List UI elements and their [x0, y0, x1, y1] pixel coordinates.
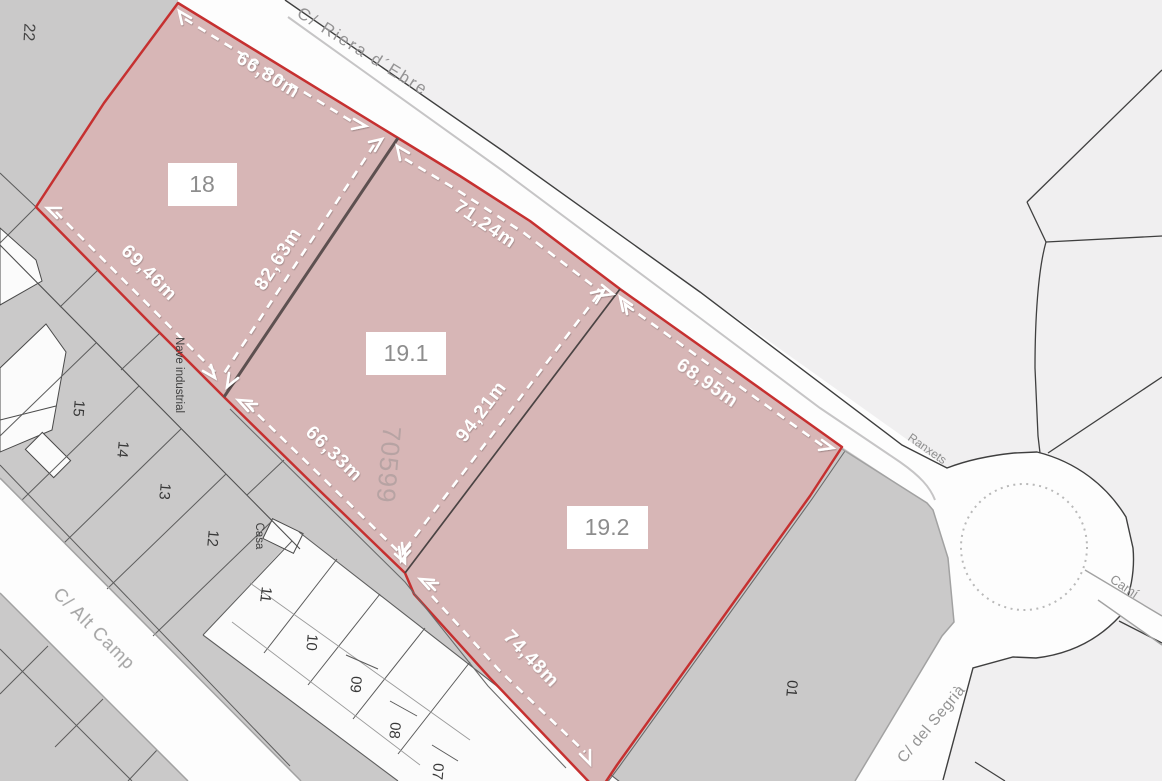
svg-text:18: 18: [189, 171, 215, 197]
svg-text:08: 08: [385, 721, 403, 739]
svg-text:10: 10: [302, 633, 320, 651]
svg-text:09: 09: [346, 675, 364, 693]
svg-text:Casa: Casa: [253, 523, 265, 550]
svg-text:07: 07: [428, 762, 446, 780]
svg-text:14: 14: [113, 440, 131, 458]
svg-text:12: 12: [203, 529, 221, 547]
svg-text:19.2: 19.2: [585, 514, 630, 540]
svg-text:01: 01: [782, 679, 800, 697]
svg-text:11: 11: [256, 586, 275, 604]
svg-text:22: 22: [20, 23, 38, 42]
svg-text:15: 15: [69, 399, 87, 417]
svg-text:Nave industrial: Nave industrial: [173, 337, 185, 413]
svg-text:13: 13: [155, 482, 173, 500]
svg-text:19.1: 19.1: [384, 340, 429, 366]
